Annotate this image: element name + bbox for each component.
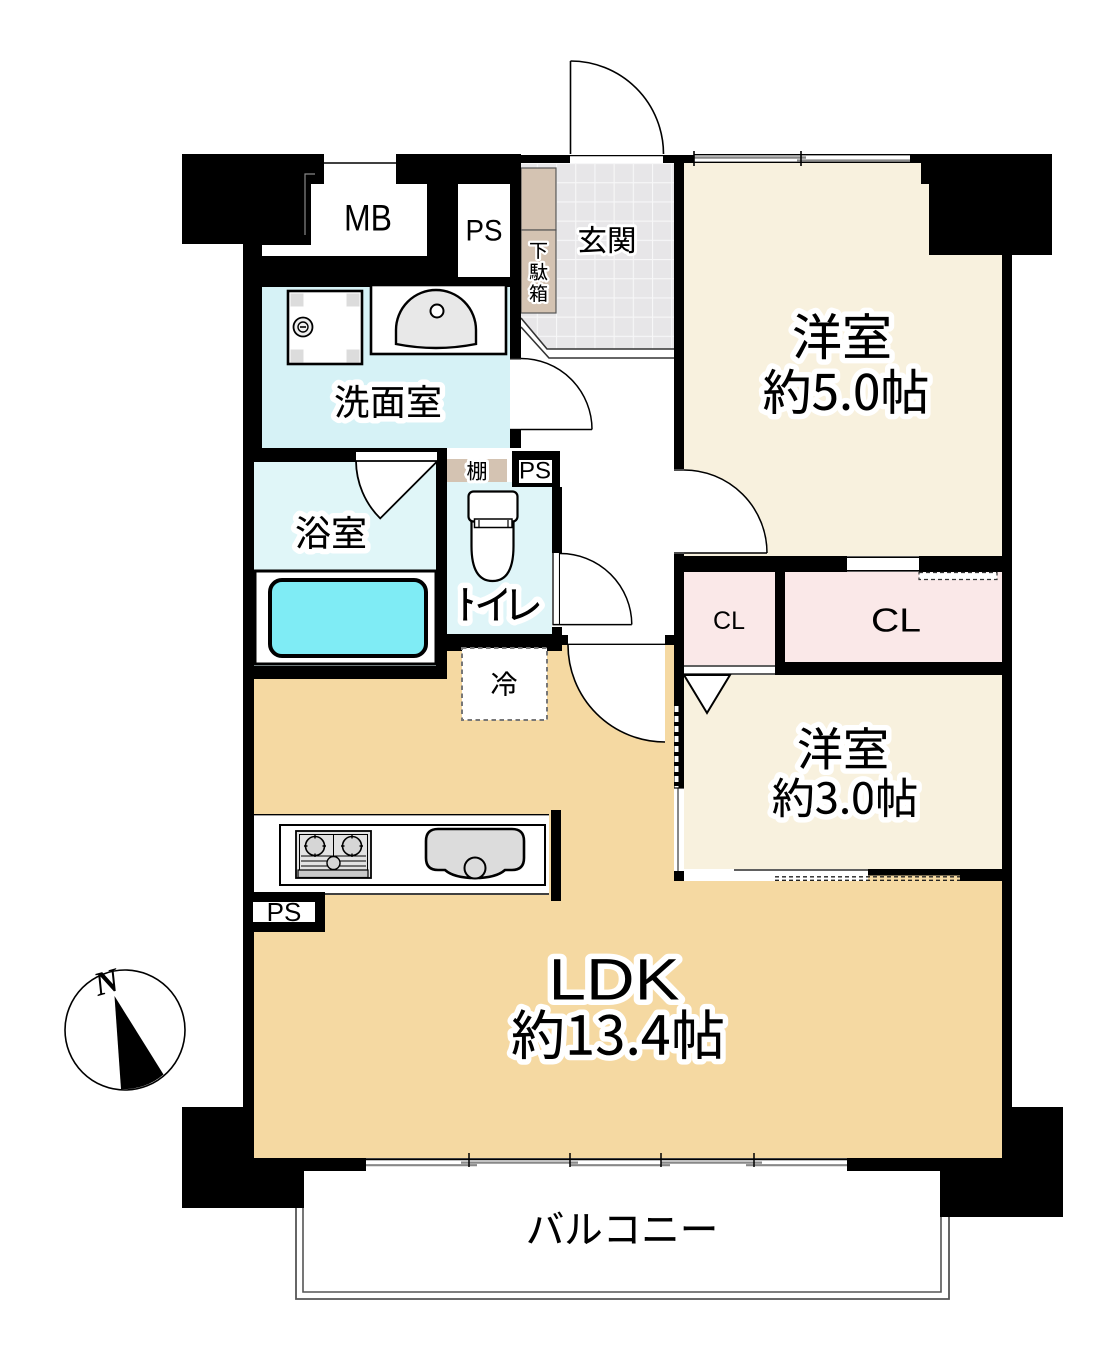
svg-text:PS: PS [519, 458, 551, 485]
svg-text:CL: CL [713, 607, 745, 635]
svg-text:PS: PS [466, 215, 503, 248]
svg-text:PS: PS [267, 897, 302, 927]
svg-text:MB: MB [344, 198, 392, 239]
svg-text:CL: CL [871, 602, 921, 639]
svg-text:LDK: LDK [549, 948, 680, 1013]
